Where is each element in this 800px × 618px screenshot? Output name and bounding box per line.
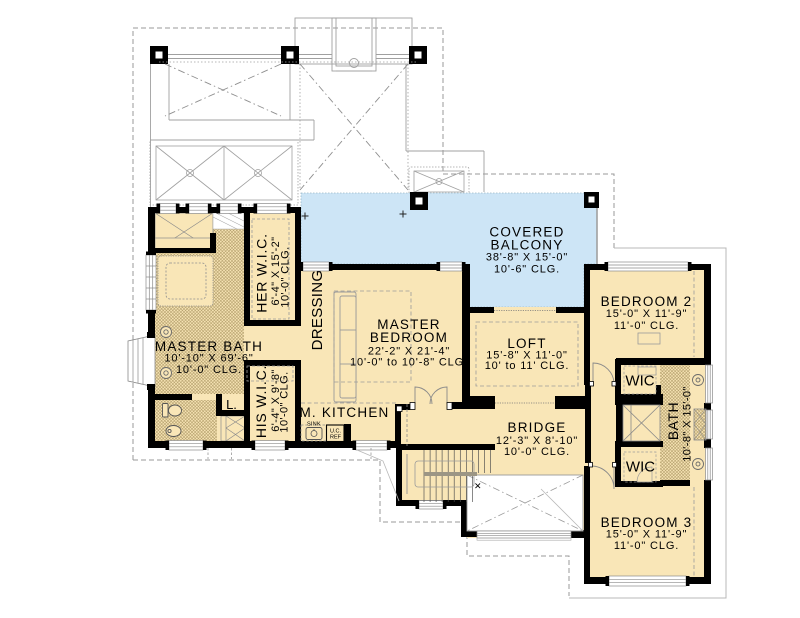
svg-text:10'-10" X 69'-6": 10'-10" X 69'-6"	[164, 353, 253, 365]
svg-text:✕: ✕	[474, 481, 482, 491]
svg-text:SINK: SINK	[307, 422, 321, 428]
svg-text:WIC: WIC	[625, 373, 654, 390]
svg-text:10'-6" CLG.: 10'-6" CLG.	[494, 264, 560, 276]
svg-text:HER W.I.C.: HER W.I.C.	[254, 233, 270, 313]
svg-text:10'-0" CLG.: 10'-0" CLG.	[504, 446, 570, 458]
svg-text:10'-0" to 10'-8" CLG.: 10'-0" to 10'-8" CLG.	[350, 357, 468, 369]
svg-text:BRIDGE: BRIDGE	[508, 420, 567, 435]
svg-text:WIC: WIC	[626, 459, 655, 476]
svg-text:15'-0" X 11'-9": 15'-0" X 11'-9"	[606, 308, 687, 320]
svg-text:DRESSING: DRESSING	[309, 270, 326, 351]
svg-text:L.: L.	[226, 397, 237, 412]
svg-text:M. KITCHEN: M. KITCHEN	[299, 405, 389, 420]
svg-text:BEDROOM 2: BEDROOM 2	[601, 294, 693, 309]
svg-text:HIS W.I.C.: HIS W.I.C.	[253, 365, 269, 438]
svg-text:10' to 11' CLG.: 10' to 11' CLG.	[485, 360, 570, 372]
svg-text:10'-0" CLG.: 10'-0" CLG.	[280, 246, 292, 307]
svg-text:REF: REF	[330, 435, 342, 441]
svg-text:11'-0" CLG.: 11'-0" CLG.	[614, 320, 679, 332]
svg-text:BATH: BATH	[665, 402, 681, 440]
svg-text:10'-0" CLG.: 10'-0" CLG.	[279, 371, 291, 432]
svg-text:10'-0" CLG.: 10'-0" CLG.	[176, 364, 242, 376]
svg-text:11'-0" CLG.: 11'-0" CLG.	[614, 540, 679, 552]
svg-text:38'-8" X 15'-0": 38'-8" X 15'-0"	[486, 252, 568, 264]
svg-text:BEDROOM: BEDROOM	[370, 330, 448, 345]
svg-text:15'-0" X 11'-9": 15'-0" X 11'-9"	[606, 529, 687, 541]
svg-text:BALCONY: BALCONY	[491, 238, 564, 253]
svg-text:10'-8" X 15'-0": 10'-8" X 15'-0"	[682, 386, 694, 462]
